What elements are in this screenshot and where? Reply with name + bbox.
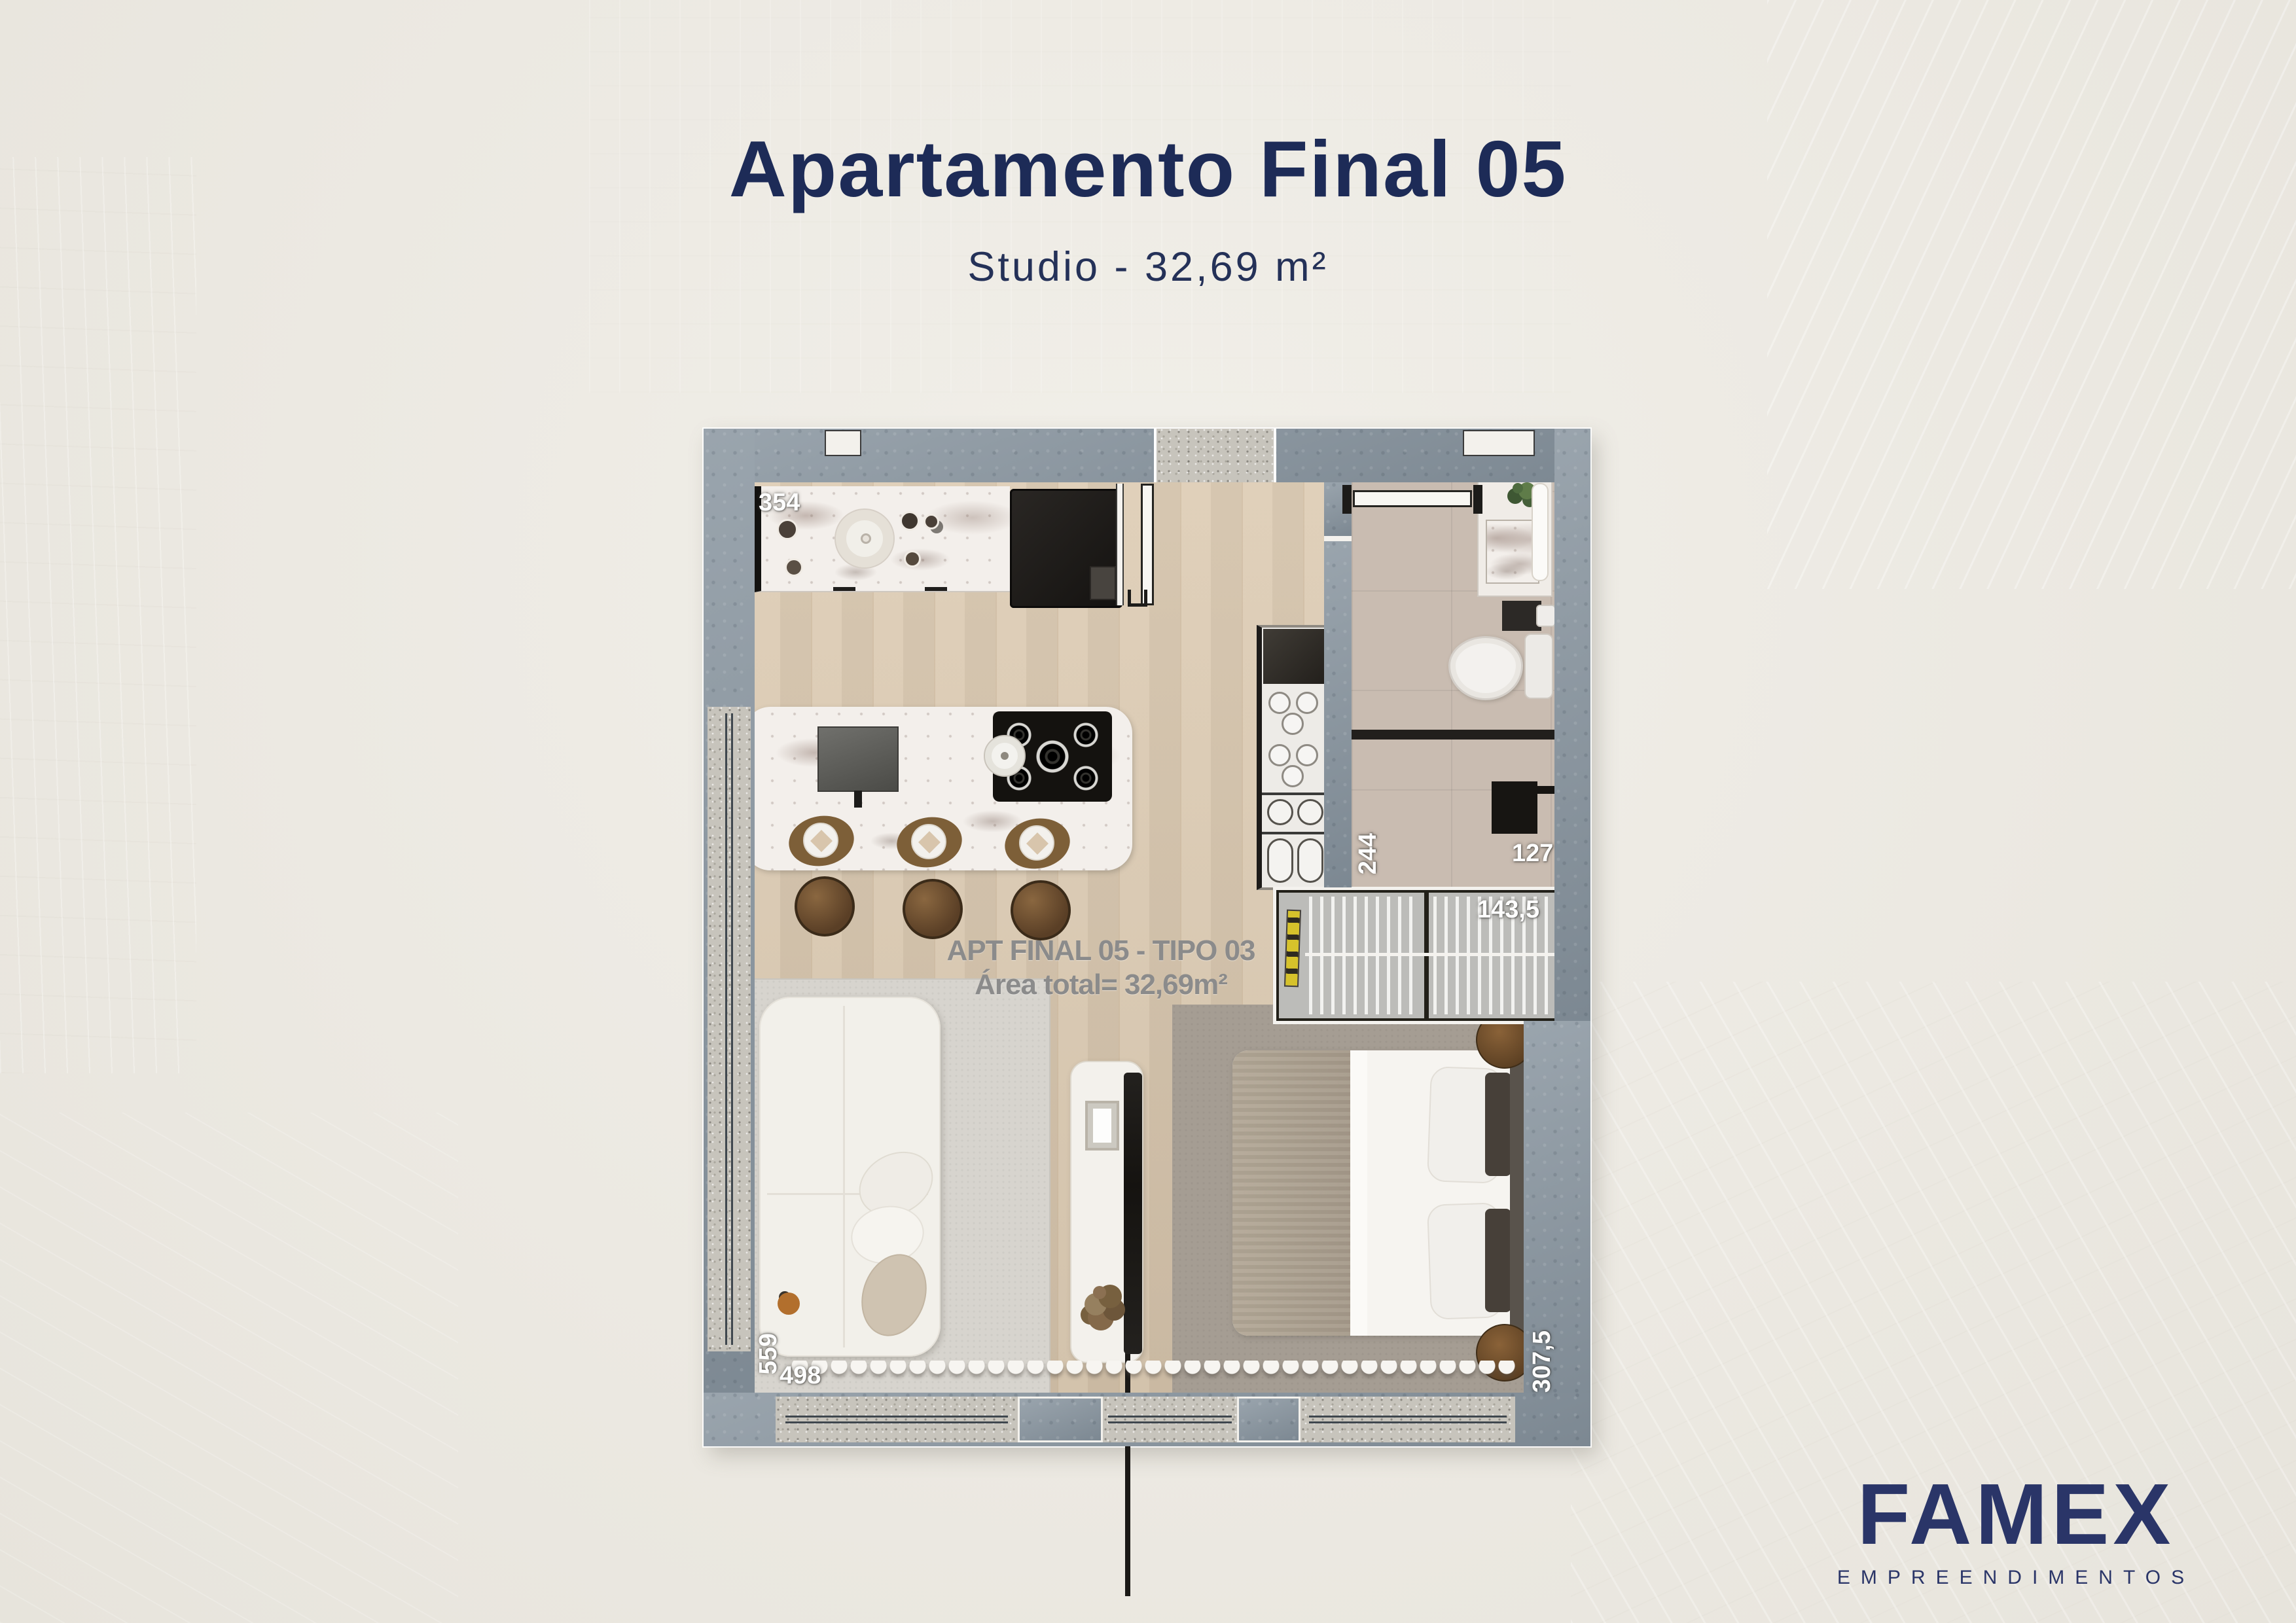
wall-right — [1554, 429, 1590, 1021]
bed — [1232, 1050, 1526, 1336]
sofa-pillow — [852, 1245, 937, 1344]
dried-plant — [1093, 1286, 1106, 1299]
wardrobe-rail — [1305, 953, 1564, 956]
unit-label-line2: Área total= 32,69m² — [900, 968, 1302, 1002]
dim-living-length: 559 — [756, 1333, 781, 1374]
vanity-cabinet-door — [1532, 483, 1549, 581]
sofa — [759, 997, 941, 1357]
plate-small — [1296, 692, 1318, 714]
dim-kitchen-counter: 354 — [759, 490, 800, 515]
plate — [911, 824, 946, 859]
page-title: Apartamento Final 05 — [0, 123, 2296, 215]
bathroom-shelf — [1502, 601, 1541, 631]
kitchen-jar — [924, 514, 939, 529]
fridge — [1010, 489, 1122, 608]
island-sink — [817, 726, 899, 792]
bed-sheet-fold — [1350, 1050, 1367, 1336]
dim-bathroom-length: 244 — [1355, 833, 1380, 874]
background-sketch-top-right — [1767, 0, 2296, 589]
plate — [803, 823, 838, 858]
brand-name: FAMEX — [1826, 1471, 2206, 1558]
bathroom-vanity — [1477, 473, 1552, 597]
napkin — [1026, 832, 1049, 855]
entry-door-handle — [1128, 590, 1147, 607]
wall-joint — [825, 430, 861, 456]
basin-oval — [1297, 838, 1323, 883]
kitchen-jar — [785, 558, 803, 577]
counter-handle — [925, 587, 947, 591]
dim-wardrobe-width: 143,5 — [1477, 897, 1539, 922]
bathroom-door-jamb — [1342, 485, 1352, 514]
window-frame — [1309, 1416, 1507, 1423]
wall-pier — [1237, 1397, 1300, 1442]
counter-divider — [1262, 832, 1329, 834]
sofa-seam-vertical — [843, 1006, 845, 1347]
tv-panel — [1124, 1073, 1142, 1354]
window-frame — [785, 1416, 1008, 1423]
dim-bedroom-length: 307,5 — [1530, 1330, 1554, 1393]
kettle-lid — [1001, 752, 1009, 760]
plate-small — [1282, 713, 1304, 735]
bar-stool — [1011, 880, 1071, 940]
kitchen-jar — [904, 550, 921, 567]
island-faucet — [854, 791, 862, 808]
faucet — [861, 533, 871, 544]
window-left — [708, 707, 751, 1351]
bed-blanket — [1232, 1050, 1350, 1336]
brand-logo: FAMEX EMPREENDIMENTOS — [1826, 1471, 2206, 1589]
unit-label-line1: APT FINAL 05 - TIPO 03 — [900, 934, 1302, 968]
bowl — [1267, 799, 1293, 825]
napkin — [918, 831, 941, 853]
page: Apartamento Final 05 Studio - 32,69 m² — [0, 0, 2296, 1623]
bathroom-wall — [1324, 539, 1352, 890]
decor-frame — [1085, 1101, 1119, 1150]
plate-small — [1268, 692, 1291, 714]
dim-bathroom-width: 127 — [1512, 841, 1553, 866]
wall-endcap — [1116, 484, 1124, 605]
bar-stool — [903, 879, 963, 939]
unit-label: APT FINAL 05 - TIPO 03 Área total= 32,69… — [900, 934, 1302, 1002]
bowl — [1297, 799, 1323, 825]
floorplan: 354 244 127 143,5 559 498 307,5 APT FINA… — [704, 429, 1590, 1446]
background-sketch-bottom-left — [0, 1113, 458, 1623]
kitchen-sink — [834, 508, 895, 569]
kettle — [984, 735, 1026, 777]
kitchen-jar — [900, 511, 920, 531]
plate-small — [1282, 765, 1304, 787]
counter-divider — [1262, 793, 1329, 795]
entry-opening — [1154, 429, 1276, 482]
counter-handle — [833, 587, 855, 591]
coffee-station — [1263, 629, 1327, 684]
bed-cushion — [1485, 1073, 1511, 1176]
wall-pier — [1018, 1397, 1103, 1442]
window-bottom — [1103, 1397, 1237, 1442]
plate — [1019, 825, 1054, 861]
window-bottom — [776, 1397, 1018, 1442]
bathroom-door-leaf — [1353, 490, 1472, 507]
wall-joint — [1463, 430, 1535, 456]
window-bottom — [1300, 1397, 1515, 1442]
shower-partition — [1352, 730, 1554, 740]
fridge-panel — [1090, 566, 1116, 600]
bathroom-door-jamb — [1473, 485, 1482, 514]
curtain — [790, 1361, 1518, 1388]
side-table-decor — [778, 1293, 800, 1315]
page-subtitle: Studio - 32,69 m² — [0, 243, 2296, 291]
paper-roll — [1536, 605, 1556, 627]
napkin — [810, 830, 833, 852]
dim-living-width: 498 — [780, 1363, 821, 1388]
toilet-tank — [1524, 633, 1553, 699]
window-frame — [725, 713, 733, 1345]
plate-small — [1268, 744, 1291, 766]
bed-cushion — [1485, 1209, 1511, 1312]
kitchen-jar — [777, 519, 798, 540]
basin-oval — [1267, 838, 1293, 883]
window-frame — [1108, 1416, 1232, 1423]
service-counter — [1257, 625, 1332, 890]
bar-stool — [795, 876, 855, 936]
vanity-plant — [1513, 483, 1523, 493]
background-sketch-left — [0, 157, 196, 1073]
brand-tagline: EMPREENDIMENTOS — [1826, 1567, 2206, 1589]
shower-fixture — [1492, 781, 1537, 834]
plate-small — [1296, 744, 1318, 766]
entry-door-leaf — [1141, 484, 1154, 605]
